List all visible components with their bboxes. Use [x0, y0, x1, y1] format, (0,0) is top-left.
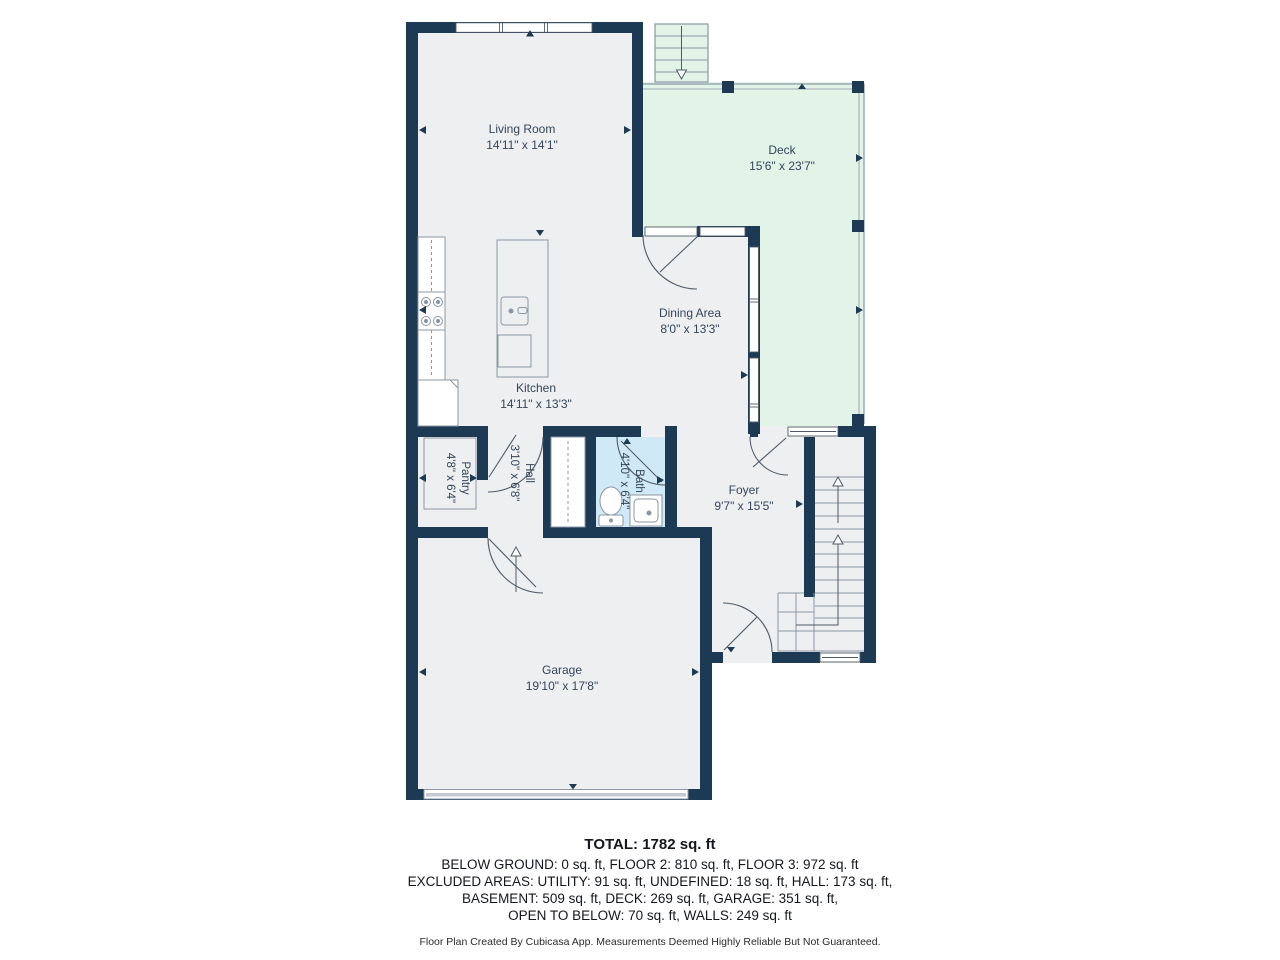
summary-line: OPEN TO BELOW: 70 sq. ft, WALLS: 249 sq.… — [10, 907, 1280, 924]
bath-left-wall — [585, 437, 596, 538]
closet-left-wall — [543, 437, 551, 527]
room-name: Living Room — [486, 121, 558, 137]
room-dimensions: 14'11" x 13'3" — [500, 396, 572, 412]
room-label-dining-area: Dining Area 8'0" x 13'3" — [659, 305, 721, 337]
room-name: Hall — [521, 445, 536, 502]
room-name: Dining Area — [659, 305, 721, 321]
room-label-garage: Garage 19'10" x 17'8" — [526, 662, 599, 694]
room-name: Garage — [526, 662, 599, 678]
garage-right-wall — [700, 527, 712, 800]
room-label-hall: Hall 3'10" x 6'8" — [506, 445, 536, 502]
garage-top-wall — [543, 527, 712, 538]
foyer-bottom-wall — [772, 652, 820, 663]
living-window — [456, 23, 592, 33]
garage-overhead-door — [424, 790, 688, 800]
deck-bottom-wall — [838, 426, 866, 437]
room-label-kitchen: Kitchen 14'11" x 13'3" — [500, 380, 572, 412]
room-label-pantry: Pantry 4'8" x 6'4" — [442, 453, 472, 503]
living-kitchen-floor — [418, 33, 632, 437]
disclaimer-text: Floor Plan Created By Cubicasa App. Meas… — [10, 936, 1280, 949]
floor-plan-page: Living Room 14'11" x 14'1" Deck 15'6" x … — [0, 0, 1280, 960]
room-dimensions: 19'10" x 17'8" — [526, 678, 599, 694]
fridge — [418, 380, 458, 426]
room-dimensions: 14'11" x 14'1" — [486, 137, 558, 153]
room-label-bath: Bath 4'10" x 6'4" — [616, 453, 646, 510]
dining-window — [700, 227, 745, 236]
room-dimensions: 3'10" x 6'8" — [506, 445, 521, 502]
room-name: Foyer — [714, 482, 773, 498]
living-right-wall — [632, 22, 643, 237]
summary-line: EXCLUDED AREAS: UTILITY: 91 sq. ft, UNDE… — [10, 873, 1280, 890]
left-exterior-wall — [406, 22, 418, 800]
dining-side-window-2 — [750, 358, 759, 422]
bath-right-wall — [665, 426, 677, 538]
room-dimensions: 9'7" x 15'5" — [714, 498, 773, 514]
room-dimensions: 4'10" x 6'4" — [616, 453, 631, 510]
room-name: Kitchen — [500, 380, 572, 396]
stair-left-wall — [804, 437, 815, 597]
dining-floor — [632, 237, 748, 437]
area-summary: TOTAL: 1782 sq. ft BELOW GROUND: 0 sq. f… — [10, 836, 1280, 949]
dining-side-window-1 — [750, 247, 759, 352]
room-name: Pantry — [457, 453, 472, 503]
total-area: TOTAL: 1782 sq. ft — [10, 836, 1280, 854]
right-exterior-wall — [864, 426, 876, 663]
room-name: Bath — [631, 453, 646, 510]
dining-door-threshold — [645, 227, 697, 236]
summary-line: BASEMENT: 509 sq. ft, DECK: 269 sq. ft, … — [10, 890, 1280, 907]
room-dimensions: 15'6" x 23'7" — [749, 158, 815, 174]
room-dimensions: 4'8" x 6'4" — [442, 453, 457, 503]
room-name: Deck — [749, 142, 815, 158]
room-label-foyer: Foyer 9'7" x 15'5" — [714, 482, 773, 514]
room-dimensions: 8'0" x 13'3" — [659, 321, 721, 337]
room-label-deck: Deck 15'6" x 23'7" — [749, 142, 815, 174]
room-label-living-room: Living Room 14'11" x 14'1" — [486, 121, 558, 153]
summary-line: BELOW GROUND: 0 sq. ft, FLOOR 2: 810 sq.… — [10, 856, 1280, 873]
pantry-right-wall — [477, 426, 488, 480]
